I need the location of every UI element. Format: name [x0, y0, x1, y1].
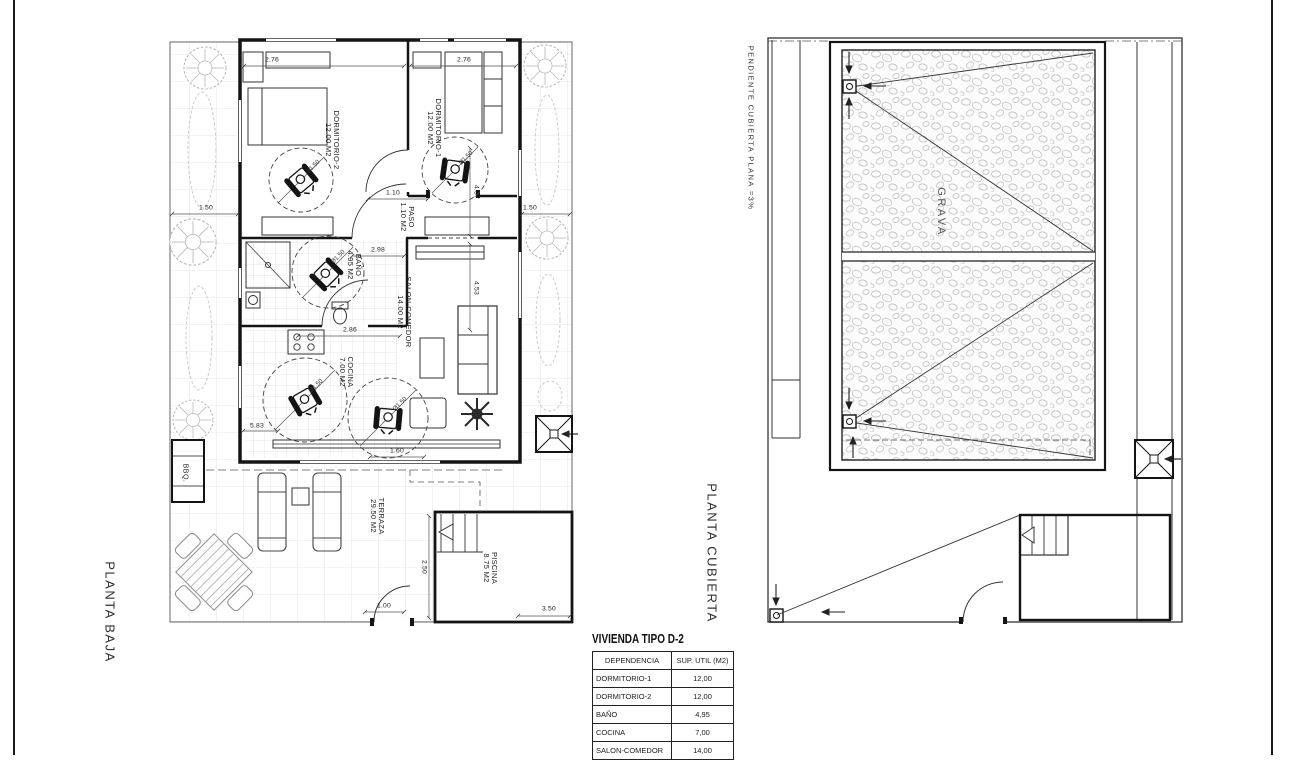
table-header-row: DEPENDENCIA SUP. UTIL (M2) — [593, 652, 734, 670]
area-summary: VIVIENDA TIPO D-2 DEPENDENCIA SUP. UTIL … — [592, 632, 734, 760]
room-label-salon-comedor: SALON-COMEDOR14.00 M2 — [396, 277, 412, 348]
table-row: DORMITORIO-2 12,00 — [593, 688, 734, 706]
dim-text: 4.37 — [473, 185, 480, 199]
bbq-label: BBQ. — [182, 464, 189, 483]
table-row: DORMITORIO-1 12,00 — [593, 670, 734, 688]
plant — [461, 398, 493, 430]
room-label-piscina: PISCINA8.75 M2 — [482, 552, 498, 584]
drain-square — [536, 416, 578, 452]
dim-text: 2.76 — [457, 57, 471, 64]
dim-text: 1.10 — [386, 190, 400, 197]
area-table: DEPENDENCIA SUP. UTIL (M2) DORMITORIO-1 … — [592, 651, 734, 760]
row-room: DORMITORIO-2 — [593, 688, 672, 706]
col-header-sup-util: SUP. UTIL (M2) — [672, 652, 734, 670]
room-label-dormitorio-2: DORMITORIO-212.00 M2 — [324, 111, 340, 170]
row-area: 4,95 — [672, 706, 734, 724]
col-header-dependencia: DEPENDENCIA — [593, 652, 672, 670]
row-room: SALON-COMEDOR — [593, 742, 672, 760]
dim-text: 2.50 — [421, 560, 428, 574]
dim-text: 2.76 — [265, 57, 279, 64]
room-label-paso: PASO1.10 M2 — [399, 202, 415, 231]
row-room: COCINA — [593, 724, 672, 742]
roof-slope-note: PENDIENTE CUBIERTA PLANA =3% — [747, 46, 756, 211]
roof-plan — [768, 38, 1182, 624]
dim-text: 1.50 — [199, 205, 213, 212]
table-row: SALON-COMEDOR 14,00 — [593, 742, 734, 760]
room-label-cocina: COCINA7.00 M2 — [338, 357, 354, 388]
dim-text: 1.60 — [390, 448, 404, 455]
ground-floor-title: PLANTA BAJA — [103, 561, 118, 663]
dim-text: 3.50 — [542, 606, 556, 613]
roof-plan-title: PLANTA CUBIERTA — [705, 483, 720, 623]
dim-text: 1.50 — [523, 205, 537, 212]
row-area: 14,00 — [672, 742, 734, 760]
drawing-sheet: PLANTA BAJA PLANTA CUBIERTA PENDIENTE CU… — [0, 0, 1290, 755]
gravel-label: GRAVA — [935, 187, 947, 236]
ground-floor-plan — [152, 37, 578, 634]
row-room: BAÑO — [593, 706, 672, 724]
table-row: COCINA 7,00 — [593, 724, 734, 742]
dim-text: 5.83 — [250, 423, 264, 430]
roof-stairs — [1020, 515, 1068, 555]
room-label-bano: BAÑO4.95 M2 — [346, 250, 362, 279]
dim-text: 4.53 — [473, 281, 480, 295]
dim-text: 1.00 — [377, 603, 391, 610]
table-row: BAÑO 4,95 — [593, 706, 734, 724]
row-area: 12,00 — [672, 688, 734, 706]
row-area: 7,00 — [672, 724, 734, 742]
row-room: DORMITORIO-1 — [593, 670, 672, 688]
table-title: VIVIENDA TIPO D-2 — [592, 632, 706, 646]
room-label-terraza: TERRAZA29.50 M2 — [369, 497, 385, 534]
row-area: 12,00 — [672, 670, 734, 688]
dim-text: 2.98 — [371, 247, 385, 254]
room-label-dormitorio-1: DORMITORIO-112.00 M2 — [426, 99, 442, 158]
dim-text: 2.86 — [343, 327, 357, 334]
